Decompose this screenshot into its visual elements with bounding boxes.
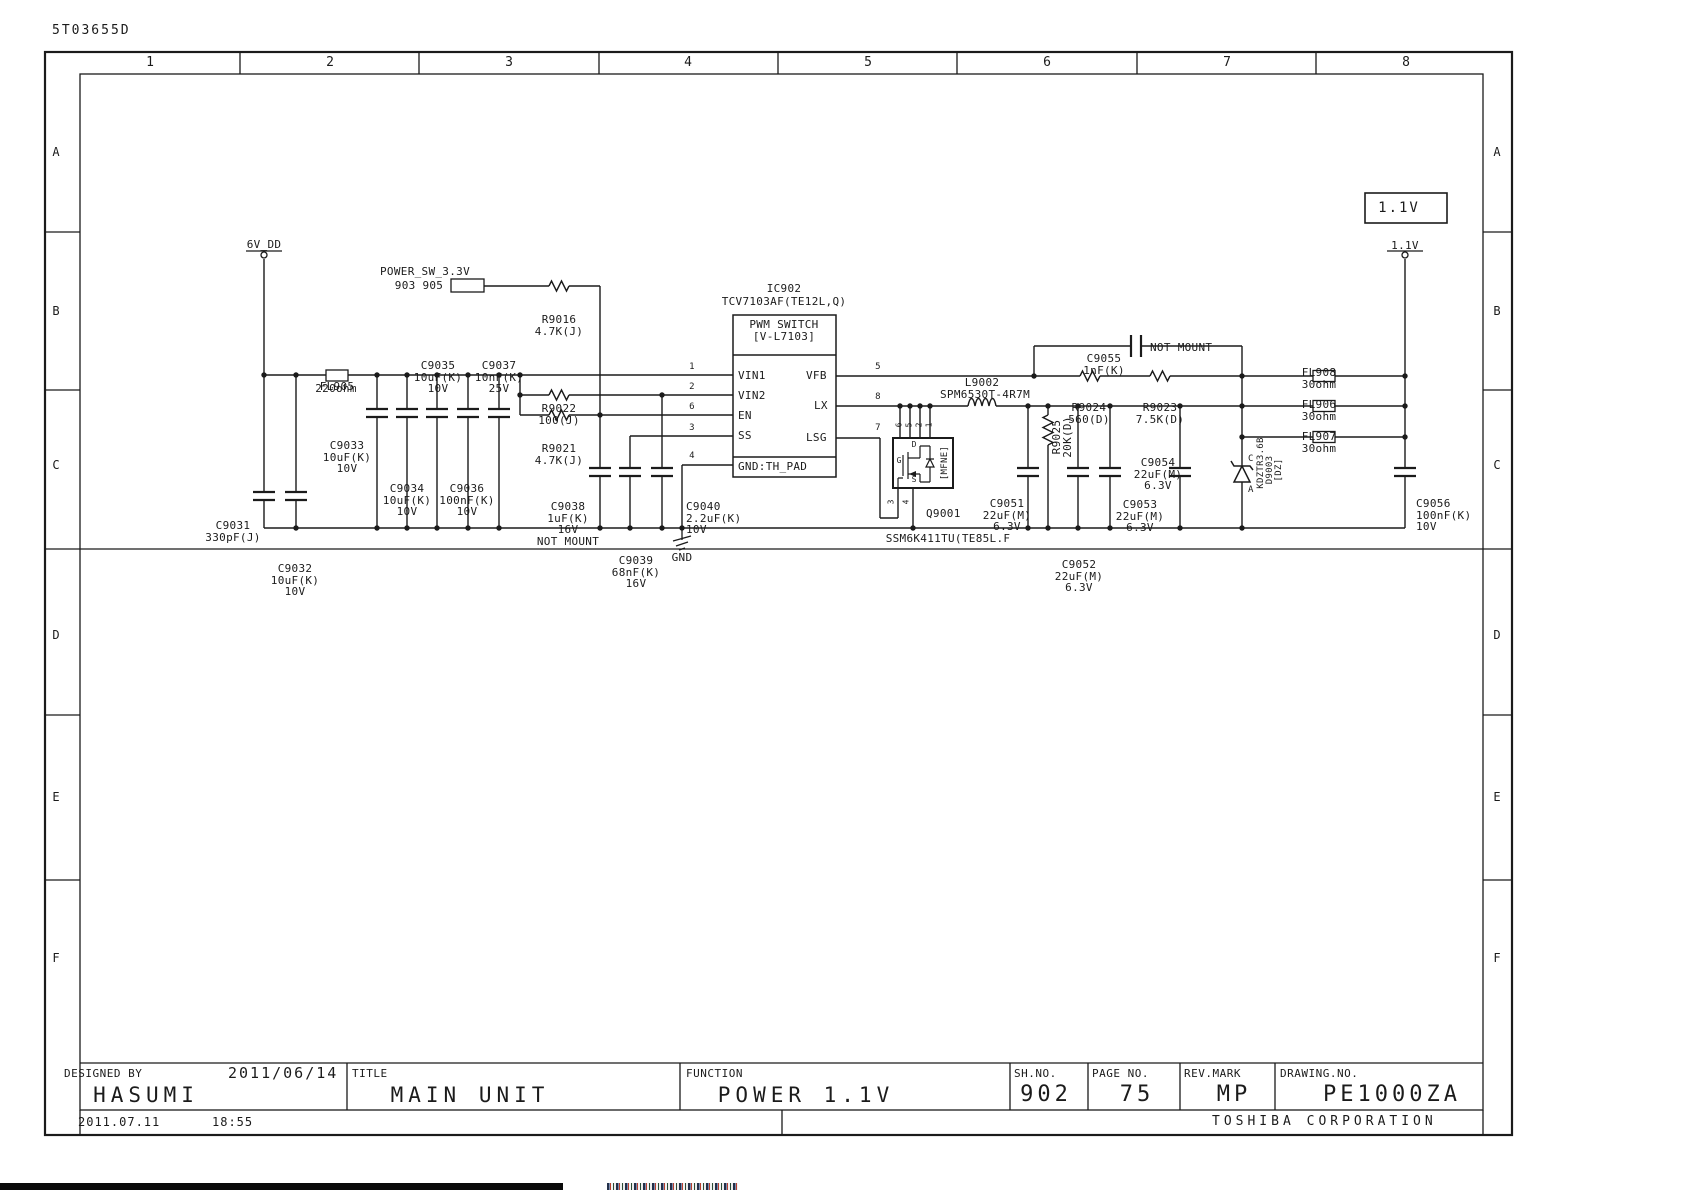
c9052-label: C905222uF(M)6.3V [1055, 536, 1103, 594]
function-name: POWER 1.1V [718, 1085, 894, 1106]
c9039-label: C903968nF(K)16V [612, 532, 660, 590]
c9034-symbol [396, 409, 418, 417]
q9001-source-label: S [912, 476, 917, 485]
col-4: 4 [684, 56, 692, 69]
page-no-label: PAGE NO. [1092, 1068, 1149, 1079]
design-date: 2011/06/14 [228, 1066, 338, 1081]
row-a-right: A [1493, 146, 1500, 158]
q9001-pin-6: 6 [896, 423, 905, 428]
designer-name: HASUMI [93, 1085, 199, 1106]
col-7: 7 [1223, 56, 1231, 69]
scan-artifact-noise [607, 1183, 738, 1190]
c9052-symbol [1067, 468, 1089, 476]
ic902-pinno-6: 6 [689, 403, 695, 413]
c9055-note: NOT MOUNT [1150, 342, 1212, 354]
q9001-pin-3: 3 [888, 500, 897, 505]
net-pin-symbols [246, 251, 1423, 258]
r9023-label: R90237.5K(D) [1136, 379, 1184, 425]
c9056-symbol [1394, 468, 1416, 476]
c9038-symbol [589, 468, 611, 476]
ic902-pin-vin2: VIN2 [738, 390, 766, 402]
q9001-pin-4: 4 [903, 500, 912, 505]
ic902-pin-vfb: VFB [806, 370, 827, 382]
q9001-part: SSM6K411TU(TE85L.F [886, 533, 1011, 545]
rev-mark: MP [1217, 1084, 1252, 1106]
sheet-no: 902 [1020, 1084, 1072, 1106]
c9051-label: C905122uF(M)6.3V [983, 475, 1031, 533]
ic902-part: TCV7103AF(TE12L,Q) [722, 296, 847, 308]
ic902-pinno-2: 2 [689, 383, 695, 393]
row-c-left: C [52, 459, 59, 471]
ic902-pinno-5: 5 [875, 363, 881, 373]
q9001-ref: Q9001 [926, 508, 961, 520]
c9040-label: C90402.2uF(K)10V [686, 478, 741, 536]
net-powersw-label: POWER_SW_3.3V [380, 266, 470, 278]
net-6vdd-label: 6V_DD [247, 239, 282, 251]
drawing-no-label: DRAWING.NO. [1280, 1068, 1358, 1079]
c9033-symbol [366, 409, 388, 417]
c9034-label: C903410uF(K)10V [383, 460, 431, 518]
page-no: 75 [1120, 1084, 1155, 1106]
col-6: 6 [1043, 56, 1051, 69]
sheet-frame [45, 52, 1512, 1135]
r9016-label: R90164.7K(J) [535, 291, 583, 337]
ic902-pin-vin1: VIN1 [738, 370, 766, 382]
row-e-left: E [52, 791, 59, 803]
schematic-page: 5T03655D 1 2 3 4 5 6 7 8 A B C D E F A B… [0, 0, 1683, 1191]
ic902-pin-gndpad: GND:TH_PAD [738, 461, 807, 473]
q9001-package: [MFNE] [941, 446, 951, 480]
ic902-pinno-7: 7 [875, 424, 881, 434]
print-time: 18:55 [212, 1116, 253, 1128]
row-a-left: A [52, 146, 59, 158]
row-c-right: C [1493, 459, 1500, 471]
c9037-label: C903710nF(K)25V [475, 337, 523, 395]
net-powersw-sheets: 903 905 [395, 280, 443, 292]
row-d-right: D [1493, 629, 1500, 641]
c9032-label: C903210uF(K)10V [271, 540, 319, 598]
designed-by-label: DESIGNED BY [64, 1068, 142, 1079]
output-flag-label: 1.1V [1378, 201, 1420, 215]
junction-dots [261, 372, 1407, 530]
row-f-right: F [1493, 952, 1500, 964]
title-label: TITLE [352, 1068, 388, 1079]
c9056-label: C9056100nF(K)10V [1416, 475, 1471, 533]
ic902-function2: [V-L7103] [753, 331, 815, 343]
q9001-gate-label: G [897, 457, 902, 466]
ic902-pinno-4: 4 [689, 452, 695, 462]
net-output-label: 1.1V [1391, 240, 1419, 252]
gnd-label: GND [672, 552, 693, 564]
col-2: 2 [326, 56, 334, 69]
c9035-symbol [426, 409, 448, 417]
r9016-symbol [549, 281, 569, 291]
c9031-label: C9031330pF(J) [205, 497, 260, 543]
q9001-pin-5: 5 [906, 423, 915, 428]
r9021-label: R90214.7K(J) [535, 420, 583, 466]
drawing-no: PE1000ZA [1323, 1084, 1461, 1106]
row-b-right: B [1493, 305, 1500, 317]
q9001-drain-label: D [912, 441, 917, 450]
power-sw-flag [451, 279, 484, 292]
d9003-anode: A [1248, 486, 1254, 496]
q9001-pin-1: 1 [926, 423, 935, 428]
r9025-value: 20K(D) [1062, 416, 1074, 458]
c9053-symbol [1099, 468, 1121, 476]
ic902-pin-lx: LX [814, 400, 828, 412]
l9002-part: SPM6530T-4R7M [940, 389, 1030, 401]
print-date: 2011.07.11 [78, 1116, 160, 1128]
c9036-label: C9036100nF(K)10V [439, 460, 494, 518]
function-label: FUNCTION [686, 1068, 743, 1079]
ic902-pin-ss: SS [738, 430, 752, 442]
col-5: 5 [864, 56, 872, 69]
col-3: 3 [505, 56, 513, 69]
c9036-symbol [457, 409, 479, 417]
ic902-pin-lsg: LSG [806, 432, 827, 444]
c9040-symbol [651, 468, 673, 476]
c9032-symbol [285, 492, 307, 500]
r9024-label: R9024560(D) [1068, 379, 1110, 425]
c9033-label: C903310uF(K)10V [323, 417, 371, 475]
ic902-pin-en: EN [738, 410, 752, 422]
scan-artifact-bar [0, 1183, 563, 1190]
fl907-label: FL90730ohm [1302, 408, 1337, 454]
ic902-ref: IC902 [767, 283, 802, 295]
sheet-no-label: SH.NO. [1014, 1068, 1057, 1079]
doc-code: 5T03655D [52, 24, 131, 37]
col-1: 1 [146, 56, 154, 69]
row-e-right: E [1493, 791, 1500, 803]
c9037-symbol [488, 409, 510, 417]
c9055-label: C90551nF(K) [1083, 330, 1125, 376]
schematic-drawing [0, 0, 1683, 1191]
company-name: TOSHIBA CORPORATION [1212, 1115, 1437, 1128]
ic902-pinno-3: 3 [689, 424, 695, 434]
fl905-value: 220ohm [315, 383, 357, 395]
d9003-type: [DZ] [1275, 459, 1285, 482]
row-d-left: D [52, 629, 59, 641]
c9039-symbol [619, 468, 641, 476]
c9038-label: C90381uF(K)16VNOT MOUNT [537, 478, 599, 547]
row-b-left: B [52, 305, 59, 317]
drawing-title: MAIN UNIT [391, 1085, 550, 1106]
c9054-label: C905422uF(M)6.3V [1134, 434, 1182, 492]
rev-mark-label: REV.MARK [1184, 1068, 1241, 1079]
d9003-cathode: C [1248, 455, 1254, 465]
row-f-left: F [52, 952, 59, 964]
c9035-label: C903510uF(K)10V [414, 337, 462, 395]
col-8: 8 [1402, 56, 1410, 69]
q9001-pin-2: 2 [916, 423, 925, 428]
ic902-pinno-8: 8 [875, 393, 881, 403]
c9055-symbol [1131, 335, 1141, 357]
sheet-inner-frame [45, 52, 1512, 1135]
ic902-pinno-1: 1 [689, 363, 695, 373]
